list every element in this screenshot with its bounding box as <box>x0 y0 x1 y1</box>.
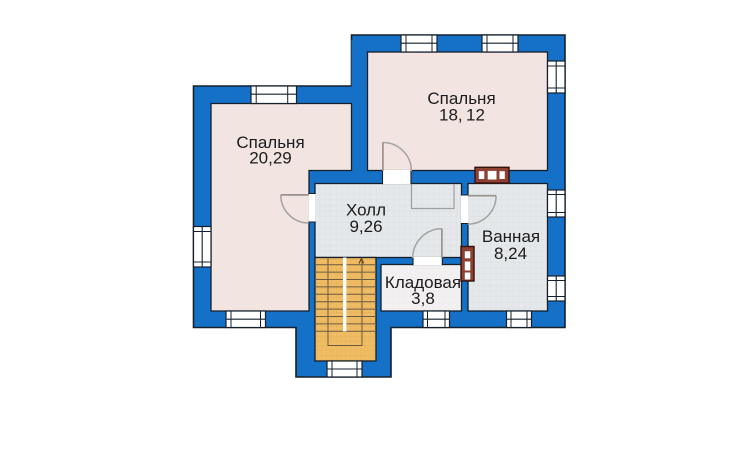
svg-text:9,26: 9,26 <box>349 217 382 236</box>
svg-text:20,29: 20,29 <box>249 149 292 168</box>
svg-text:8,24: 8,24 <box>494 244 527 263</box>
svg-text:3,8: 3,8 <box>411 289 435 308</box>
svg-text:18, 12: 18, 12 <box>439 106 485 125</box>
